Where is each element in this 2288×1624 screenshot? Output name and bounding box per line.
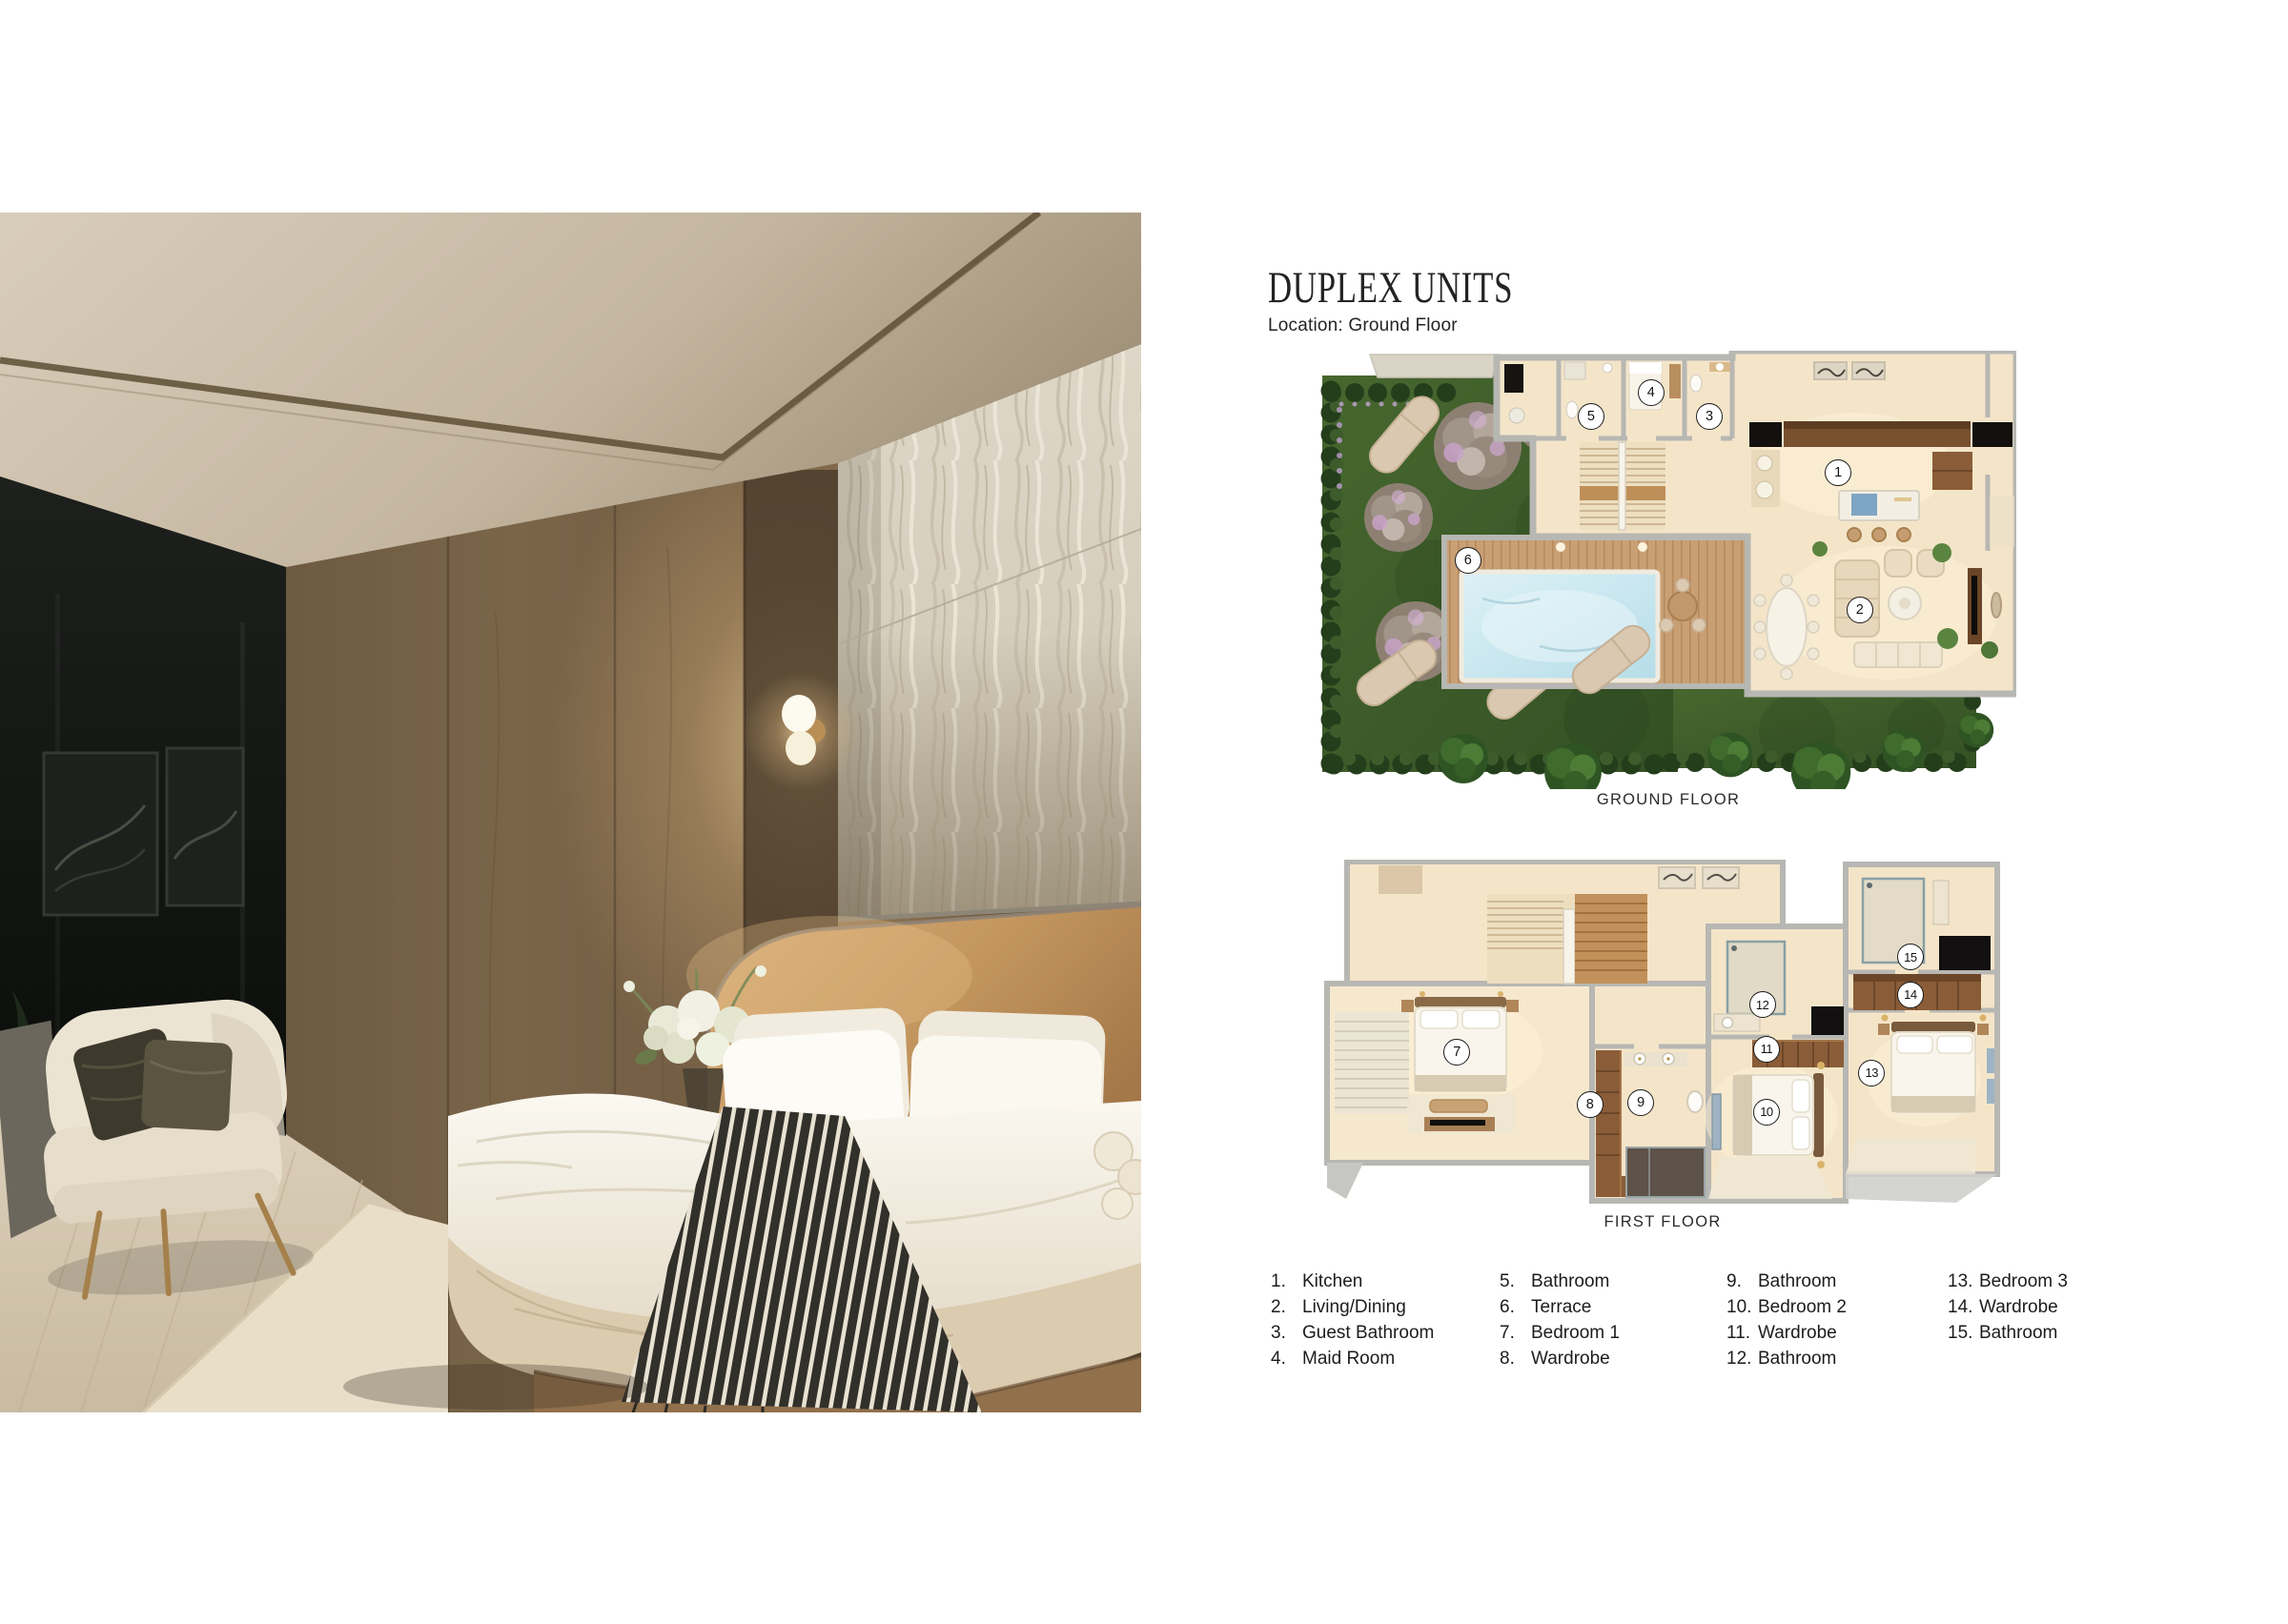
legend-number: 11. [1726, 1320, 1758, 1346]
first-floor-caption: FIRST FLOOR [1323, 1213, 2002, 1231]
bedroom-photo [0, 213, 1141, 1412]
legend-label: Bathroom [1758, 1346, 1836, 1371]
legend-label: Maid Room [1302, 1346, 1395, 1371]
first-floor-plan: 789101112131415 [1323, 860, 2002, 1206]
legend-label: Terrace [1531, 1294, 1591, 1320]
legend-number: 3. [1271, 1320, 1302, 1346]
legend-label: Bedroom 2 [1758, 1294, 1847, 1320]
legend-number: 15. [1948, 1320, 1979, 1346]
bedroom-photo-art [0, 213, 1141, 1412]
legend-number: 14. [1948, 1294, 1979, 1320]
legend-label: Wardrobe [1758, 1320, 1837, 1346]
room-marker-13: 13 [1858, 1060, 1885, 1086]
legend-number: 1. [1271, 1269, 1302, 1294]
brochure-page: DUPLEX UNITS Location: Ground Floor [0, 0, 2288, 1624]
wall-art-frame [167, 748, 243, 905]
legend-label: Guest Bathroom [1302, 1320, 1434, 1346]
legend-column-1: 1.Kitchen2.Living/Dining3.Guest Bathroom… [1271, 1269, 1434, 1371]
legend-item: 9.Bathroom [1726, 1269, 1847, 1294]
legend-label: Bathroom [1758, 1269, 1836, 1294]
room-marker-9: 9 [1627, 1089, 1654, 1116]
legend-label: Bathroom [1979, 1320, 2057, 1346]
legend-column-4: 13.Bedroom 314.Wardrobe15.Bathroom [1948, 1269, 2068, 1346]
first-floor-markers: 789101112131415 [1323, 860, 2002, 1206]
legend-item: 2.Living/Dining [1271, 1294, 1434, 1320]
legend-column-2: 5.Bathroom6.Terrace7.Bedroom 18.Wardrobe [1500, 1269, 1620, 1371]
legend-label: Living/Dining [1302, 1294, 1406, 1320]
legend-number: 4. [1271, 1346, 1302, 1371]
legend-item: 15.Bathroom [1948, 1320, 2068, 1346]
legend-number: 9. [1726, 1269, 1758, 1294]
legend-item: 13.Bedroom 3 [1948, 1269, 2068, 1294]
legend-item: 14.Wardrobe [1948, 1294, 2068, 1320]
legend-label: Kitchen [1302, 1269, 1362, 1294]
room-marker-1: 1 [1825, 459, 1851, 486]
room-marker-14: 14 [1897, 982, 1924, 1008]
legend-number: 5. [1500, 1269, 1531, 1294]
room-marker-8: 8 [1577, 1091, 1604, 1118]
page-title: DUPLEX UNITS [1268, 262, 1513, 314]
wall-sconce-light [743, 673, 861, 791]
legend-number: 7. [1500, 1320, 1531, 1346]
legend-item: 7.Bedroom 1 [1500, 1320, 1620, 1346]
location-subtitle: Location: Ground Floor [1268, 315, 1458, 336]
room-marker-7: 7 [1443, 1039, 1470, 1066]
legend-number: 6. [1500, 1294, 1531, 1320]
room-marker-5: 5 [1578, 403, 1604, 430]
room-marker-3: 3 [1696, 403, 1723, 430]
legend-label: Wardrobe [1979, 1294, 2058, 1320]
legend-number: 2. [1271, 1294, 1302, 1320]
legend-number: 12. [1726, 1346, 1758, 1371]
room-marker-2: 2 [1847, 597, 1873, 623]
legend-item: 4.Maid Room [1271, 1346, 1434, 1371]
legend-item: 3.Guest Bathroom [1271, 1320, 1434, 1346]
room-marker-12: 12 [1749, 991, 1776, 1018]
room-legend: 1.Kitchen2.Living/Dining3.Guest Bathroom… [1271, 1269, 2234, 1383]
legend-number: 10. [1726, 1294, 1758, 1320]
ground-floor-markers: 123456 [1320, 351, 2016, 789]
legend-item: 12.Bathroom [1726, 1346, 1847, 1371]
ground-floor-plan: 123456 [1320, 351, 2016, 789]
legend-label: Bathroom [1531, 1269, 1609, 1294]
legend-item: 11.Wardrobe [1726, 1320, 1847, 1346]
legend-item: 1.Kitchen [1271, 1269, 1434, 1294]
legend-item: 6.Terrace [1500, 1294, 1620, 1320]
room-marker-11: 11 [1753, 1036, 1780, 1063]
wall-art-frame [44, 753, 157, 915]
legend-label: Bedroom 1 [1531, 1320, 1620, 1346]
legend-number: 8. [1500, 1346, 1531, 1371]
legend-label: Bedroom 3 [1979, 1269, 2068, 1294]
legend-number: 13. [1948, 1269, 1979, 1294]
room-marker-6: 6 [1455, 547, 1481, 574]
legend-item: 5.Bathroom [1500, 1269, 1620, 1294]
ground-floor-caption: GROUND FLOOR [1320, 791, 2016, 809]
legend-item: 8.Wardrobe [1500, 1346, 1620, 1371]
room-marker-15: 15 [1897, 944, 1924, 970]
room-marker-4: 4 [1638, 379, 1665, 406]
legend-column-3: 9.Bathroom10.Bedroom 211.Wardrobe12.Bath… [1726, 1269, 1847, 1371]
legend-label: Wardrobe [1531, 1346, 1610, 1371]
room-marker-10: 10 [1753, 1099, 1780, 1126]
legend-item: 10.Bedroom 2 [1726, 1294, 1847, 1320]
